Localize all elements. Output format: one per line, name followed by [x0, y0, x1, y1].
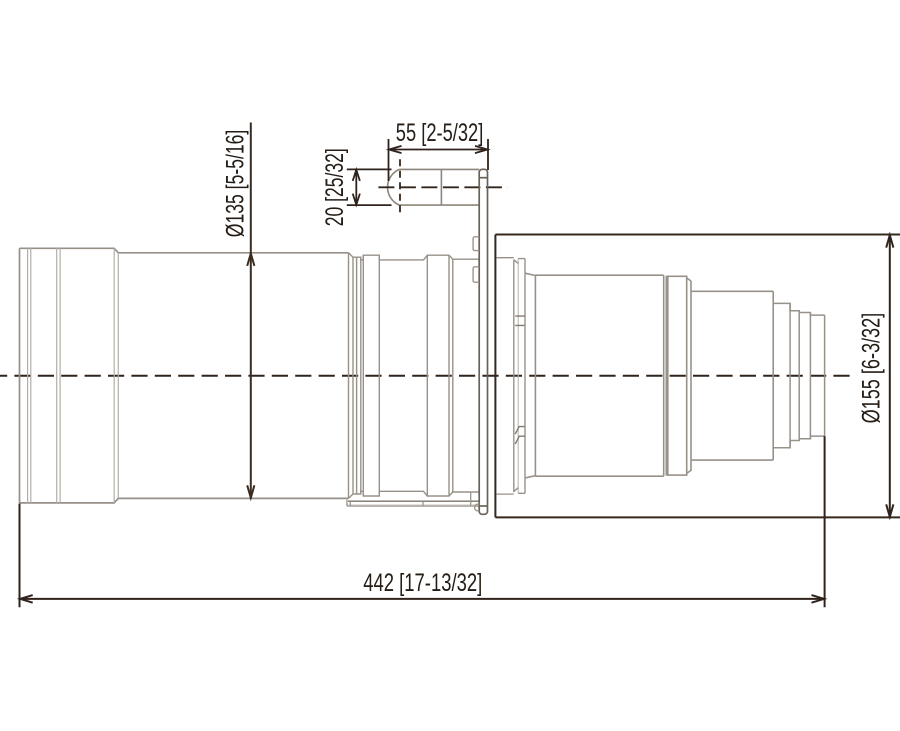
- svg-text:20 [25/32]: 20 [25/32]: [321, 148, 349, 226]
- svg-text:442 [17-13/32]: 442 [17-13/32]: [363, 569, 482, 597]
- svg-text:Ø135 [5-5/16]: Ø135 [5-5/16]: [222, 130, 250, 238]
- svg-text:Ø155 [6-3/32]: Ø155 [6-3/32]: [857, 313, 885, 424]
- svg-text:55 [2-5/32]: 55 [2-5/32]: [396, 119, 484, 147]
